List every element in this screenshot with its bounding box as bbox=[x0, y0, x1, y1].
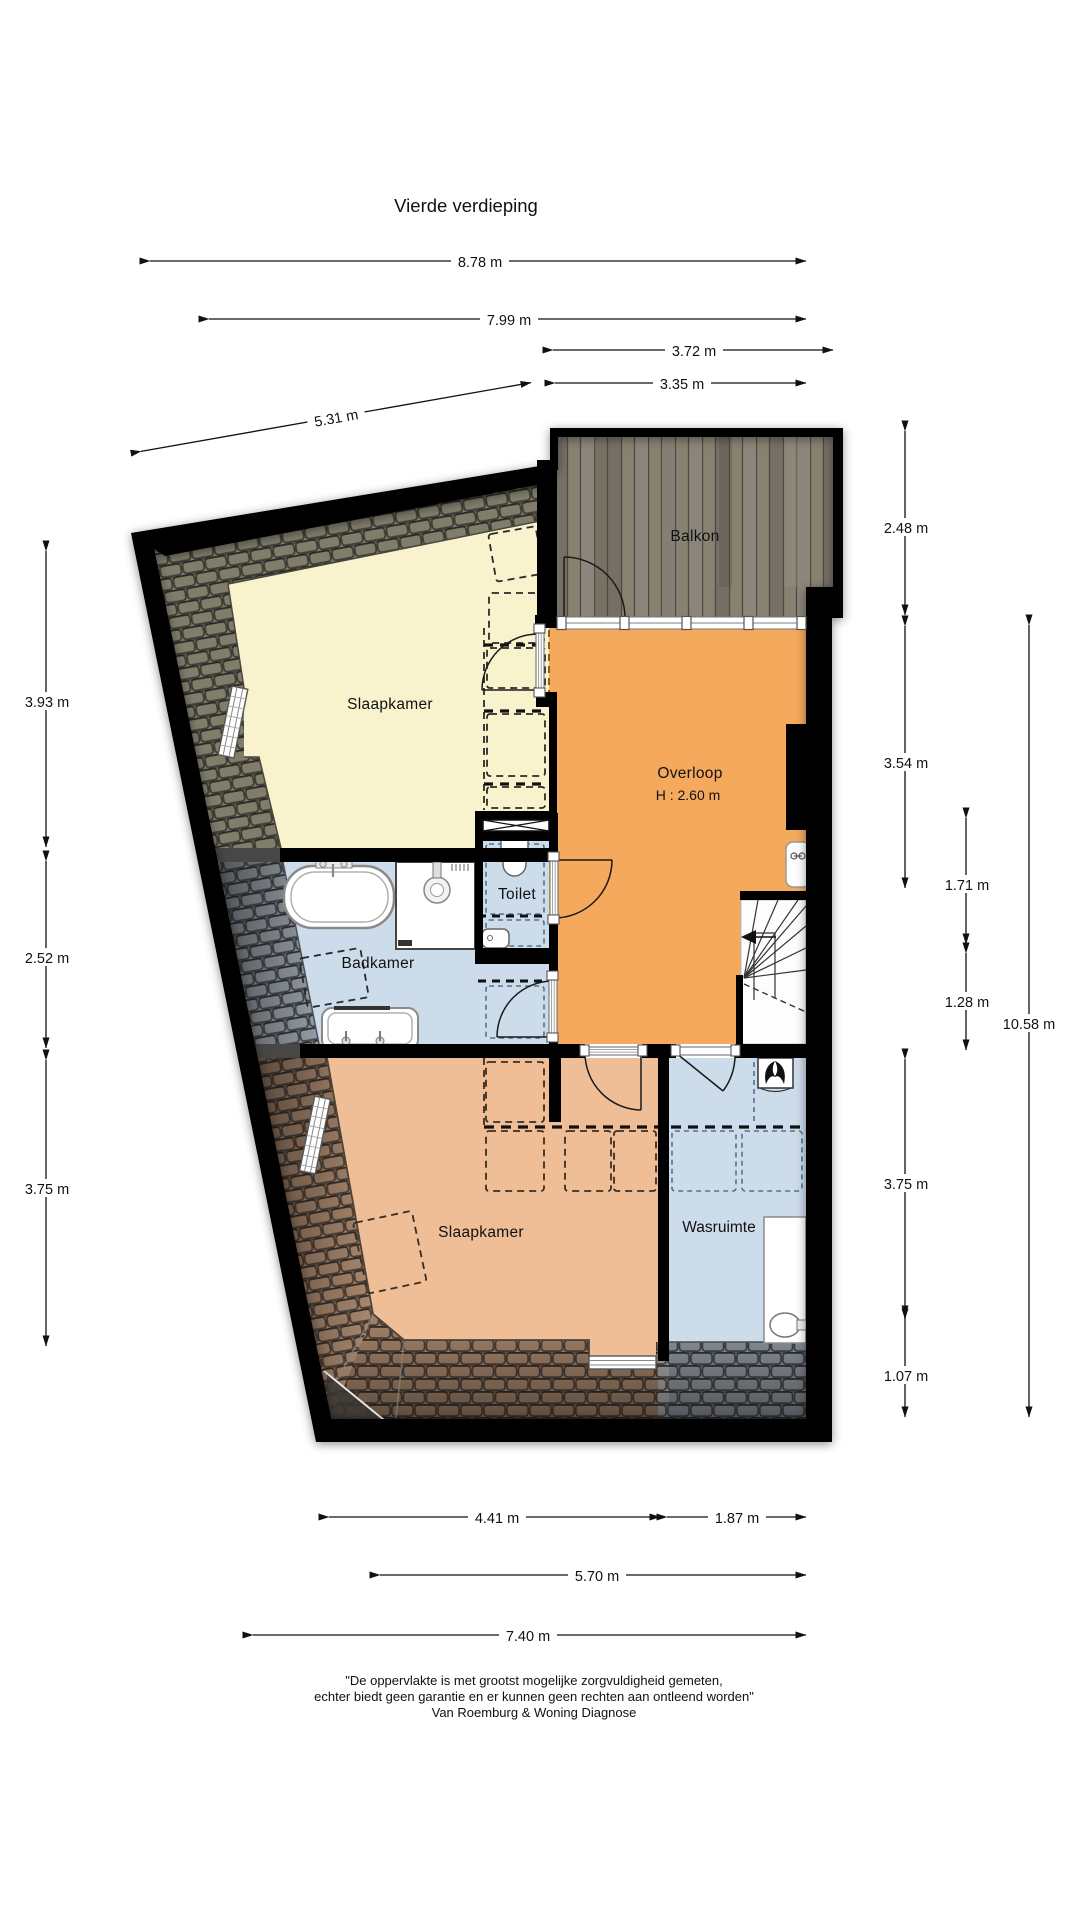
svg-text:3.72 m: 3.72 m bbox=[672, 344, 716, 360]
svg-text:3.75 m: 3.75 m bbox=[884, 1177, 928, 1193]
svg-text:3.35 m: 3.35 m bbox=[660, 377, 704, 393]
svg-text:1.71 m: 1.71 m bbox=[945, 878, 989, 894]
svg-text:4.41 m: 4.41 m bbox=[475, 1511, 519, 1527]
svg-text:Van Roemburg & Woning Diagnose: Van Roemburg & Woning Diagnose bbox=[432, 1705, 637, 1720]
svg-text:7.99 m: 7.99 m bbox=[487, 313, 531, 329]
svg-text:echter biedt geen garantie en: echter biedt geen garantie en er kunnen … bbox=[314, 1689, 754, 1704]
svg-text:8.78 m: 8.78 m bbox=[458, 255, 502, 271]
svg-text:Slaapkamer: Slaapkamer bbox=[347, 696, 433, 713]
svg-text:Toilet: Toilet bbox=[498, 886, 536, 903]
svg-text:1.87 m: 1.87 m bbox=[715, 1511, 759, 1527]
svg-text:5.70 m: 5.70 m bbox=[575, 1569, 619, 1585]
svg-text:3.75 m: 3.75 m bbox=[25, 1182, 69, 1198]
svg-text:Slaapkamer: Slaapkamer bbox=[438, 1224, 524, 1241]
svg-text:7.40 m: 7.40 m bbox=[506, 1629, 550, 1645]
svg-text:2.48 m: 2.48 m bbox=[884, 521, 928, 537]
svg-text:Wasruimte: Wasruimte bbox=[682, 1219, 756, 1236]
svg-text:10.58 m: 10.58 m bbox=[1003, 1017, 1055, 1033]
svg-text:3.54 m: 3.54 m bbox=[884, 756, 928, 772]
svg-text:Balkon: Balkon bbox=[670, 528, 719, 545]
svg-text:"De oppervlakte is met grootst: "De oppervlakte is met grootst mogelijke… bbox=[345, 1673, 722, 1688]
svg-text:Vierde verdieping: Vierde verdieping bbox=[394, 195, 538, 216]
svg-text:Overloop: Overloop bbox=[657, 765, 722, 782]
svg-text:3.93 m: 3.93 m bbox=[25, 695, 69, 711]
svg-text:2.52 m: 2.52 m bbox=[25, 951, 69, 967]
svg-text:Badkamer: Badkamer bbox=[341, 955, 414, 972]
svg-text:1.07 m: 1.07 m bbox=[884, 1369, 928, 1385]
svg-text:H : 2.60 m: H : 2.60 m bbox=[656, 787, 721, 803]
svg-text:1.28 m: 1.28 m bbox=[945, 995, 989, 1011]
